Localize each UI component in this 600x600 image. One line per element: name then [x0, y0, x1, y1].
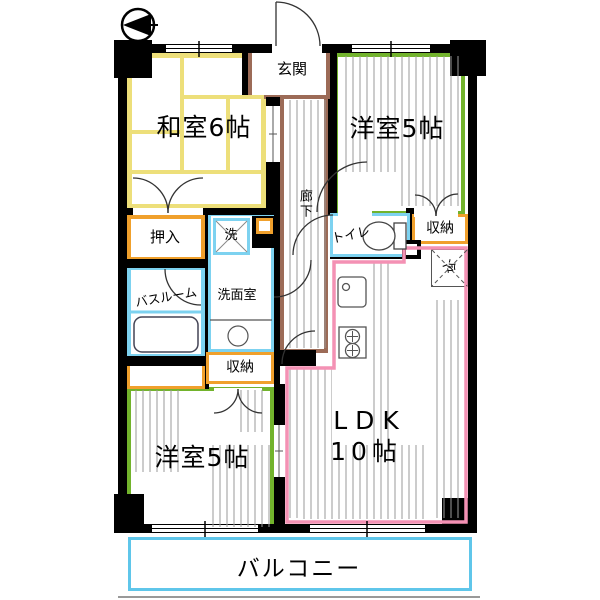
label-washer: 洗 [224, 229, 237, 243]
floor-plan: 和室6帖 洋室5帖 洋室5帖 LDK 10帖 玄関 廊下 押入 バスルーム 洗面… [0, 0, 600, 600]
north-arrow-icon [122, 9, 158, 41]
kitchen-sink-icon [338, 277, 366, 307]
label-shuunou-top-right: 収納 [426, 222, 454, 237]
label-shuunou-bottom: 収納 [226, 361, 254, 376]
sliding-door-marks [269, 106, 283, 477]
label-yoshitsu-top-right: 洋室5帖 [350, 116, 445, 142]
stove-icon [339, 327, 366, 358]
label-washitsu: 和室6帖 [157, 115, 252, 141]
label-ldk-size: 10帖 [330, 439, 402, 465]
bathtub-icon [131, 312, 201, 352]
vanity-sink-icon [210, 320, 272, 346]
label-genkan: 玄関 [277, 62, 307, 78]
label-senmenshitsu: 洗面室 [217, 289, 256, 303]
label-balcony: バルコニー [237, 557, 362, 581]
label-yoshitsu-bottom-left: 洋室5帖 [155, 445, 250, 471]
label-rouka: 廊下 [297, 189, 311, 219]
label-oshiire: 押入 [150, 230, 180, 246]
plan-linework [0, 0, 600, 600]
label-ldk: LDK [333, 408, 407, 434]
